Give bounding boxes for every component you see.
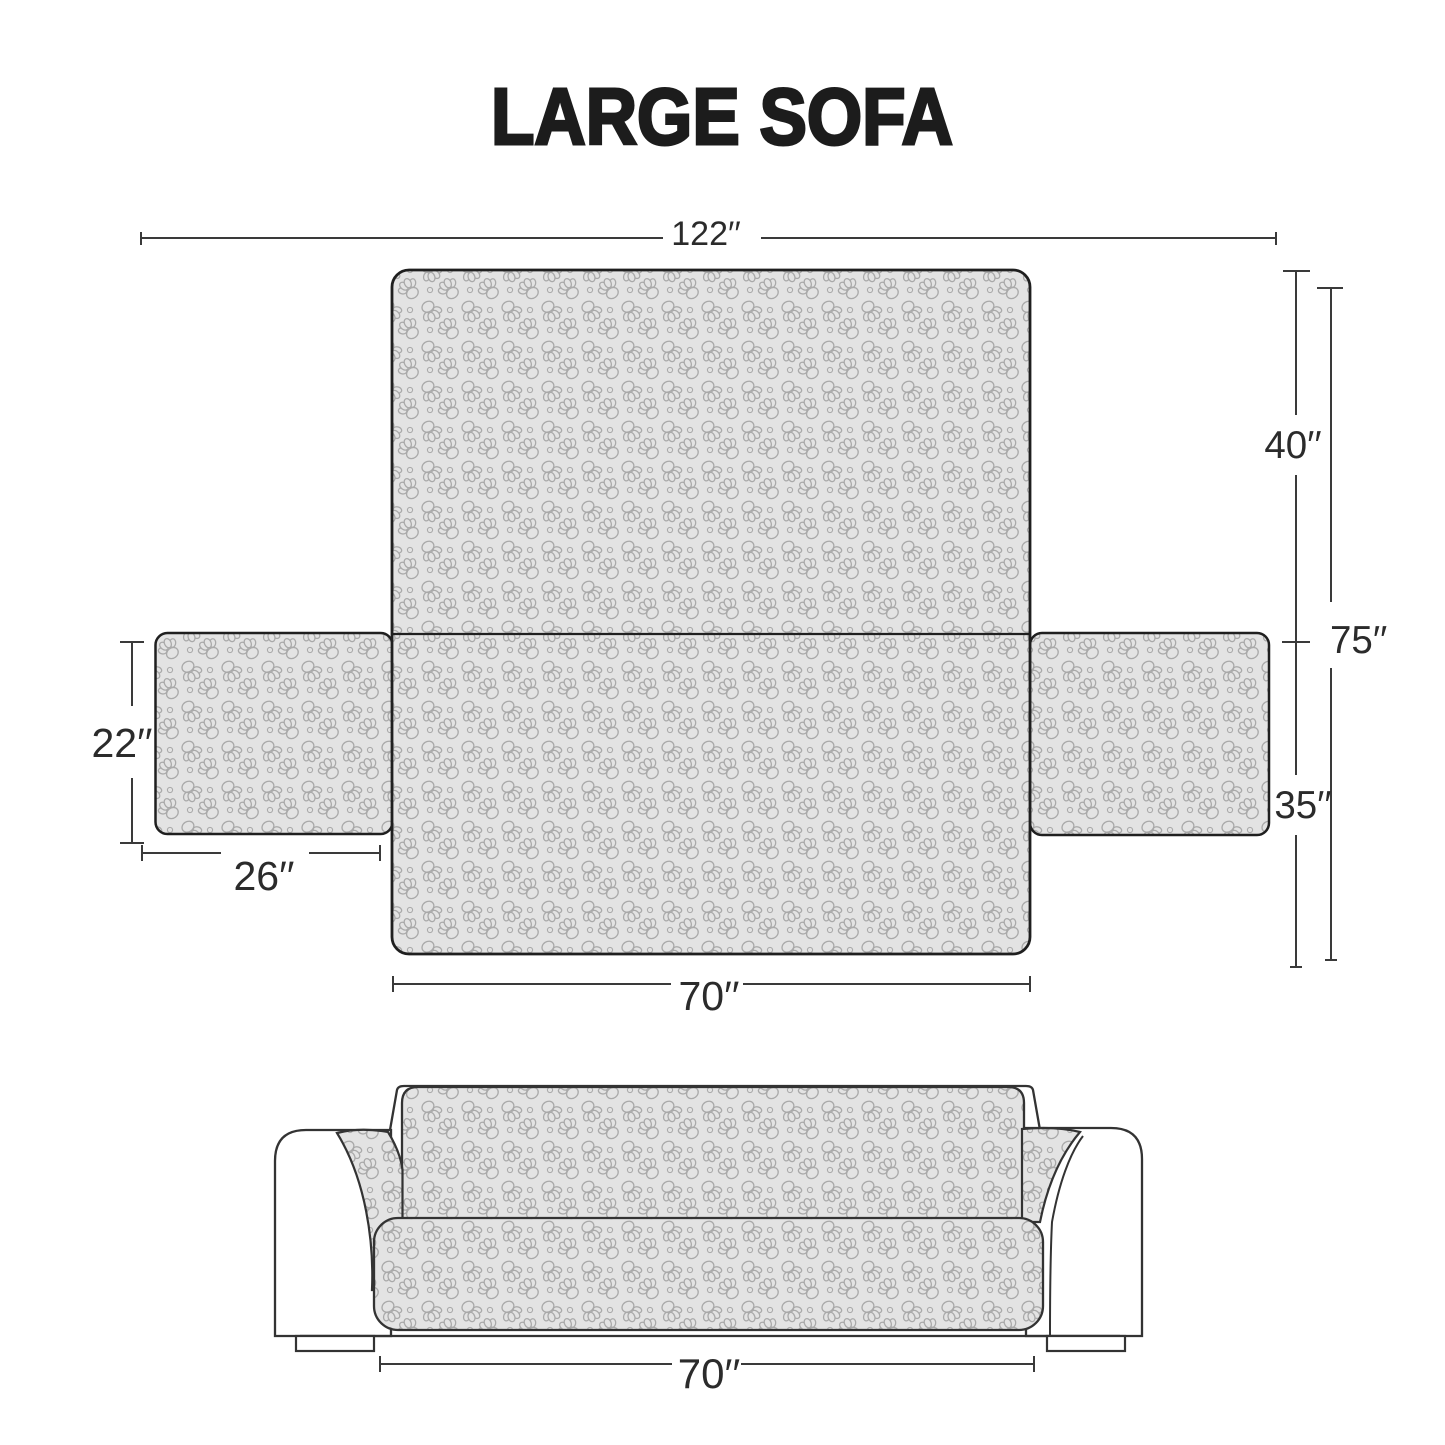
svg-text:22′′: 22′′ xyxy=(92,720,153,766)
svg-text:35′′: 35′′ xyxy=(1274,784,1331,827)
svg-text:75′′: 75′′ xyxy=(1330,619,1387,662)
svg-text:40′′: 40′′ xyxy=(1264,424,1321,467)
svg-text:70′′: 70′′ xyxy=(679,973,740,1019)
svg-text:122′′: 122′′ xyxy=(671,215,740,253)
svg-text:LARGE SOFA: LARGE SOFA xyxy=(491,72,953,161)
svg-text:70′′: 70′′ xyxy=(678,1350,741,1397)
svg-text:26′′: 26′′ xyxy=(234,853,295,899)
